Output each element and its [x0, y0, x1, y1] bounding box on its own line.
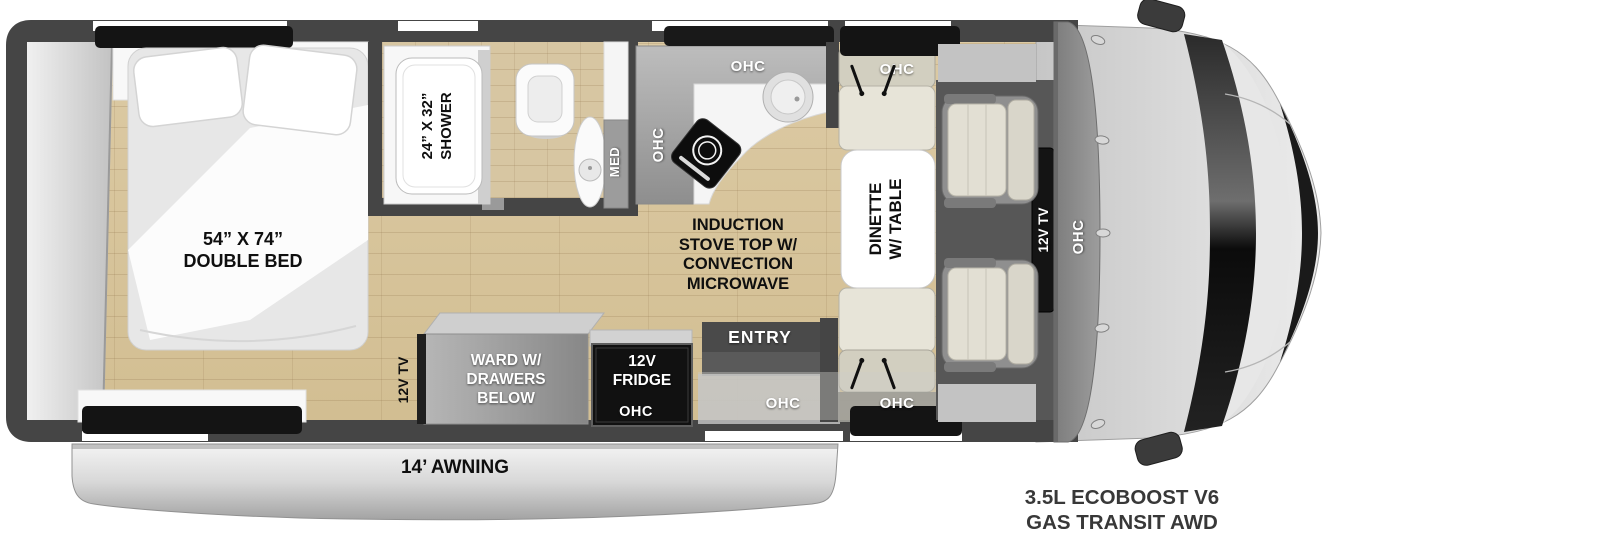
shower-label: 24” X 32” SHOWER [418, 56, 462, 196]
fridge-label: 12V FRIDGE [587, 352, 697, 390]
toilet [516, 64, 574, 139]
dash-panel [938, 44, 1036, 82]
med-label: MED [607, 127, 625, 197]
driver-seat [942, 94, 1038, 208]
kitchen-sink [763, 72, 813, 122]
dinette-bench-seat [839, 288, 935, 352]
kitchen-ohc-wall-label: OHC [650, 110, 668, 180]
dash-panel [938, 384, 1036, 422]
bedroom-tv [417, 334, 426, 424]
dinette-ohc-bottom-label: OHC [862, 395, 932, 412]
entry-label: ENTRY [700, 327, 820, 348]
dinette-label: DINETTE W/ TABLE [866, 144, 910, 294]
kitchen-window [664, 26, 834, 46]
bed-label: 54” X 74” DOUBLE BED [143, 228, 343, 272]
kitchen-ohc-top-label: OHC [713, 58, 783, 75]
fridge-ohc-label: OHC [601, 404, 671, 420]
cab-tv-label: 12V TV [1036, 185, 1052, 275]
bedroom-tv-label: 12V TV [395, 340, 411, 420]
wardrobe-label: WARD W/ DRAWERS BELOW [431, 351, 581, 408]
bathroom [368, 42, 638, 216]
passenger-seat [942, 258, 1038, 372]
entry-ohc-label: OHC [748, 395, 818, 412]
bed-type-label: DOUBLE BED [143, 250, 343, 272]
kitchen-dinette-partition [826, 42, 839, 128]
dinette-ohc-top-label: OHC [862, 61, 932, 78]
chassis-label: 3.5L ECOBOOST V6 GAS TRANSIT AWD [992, 485, 1252, 535]
bed-size-label: 54” X 74” [143, 228, 343, 250]
awning-label: 14’ AWNING [345, 457, 565, 479]
wardrobe-top [424, 313, 604, 334]
rv-floorplan: 54” X 74” DOUBLE BED 24” X 32” SHOWER ME… [0, 0, 1600, 540]
pillow [132, 46, 244, 128]
bathroom-sink [574, 117, 606, 207]
cab-ohc-label: OHC [1070, 202, 1088, 272]
pillow [242, 44, 359, 137]
front-closet-panel [27, 42, 113, 420]
awning [72, 444, 838, 520]
bedroom-window-bottom [82, 406, 302, 434]
double-bed [128, 44, 368, 350]
dinette-bench-seat [839, 86, 935, 150]
stove-label: INDUCTION STOVE TOP W/ CONVECTION MICROW… [648, 216, 828, 294]
